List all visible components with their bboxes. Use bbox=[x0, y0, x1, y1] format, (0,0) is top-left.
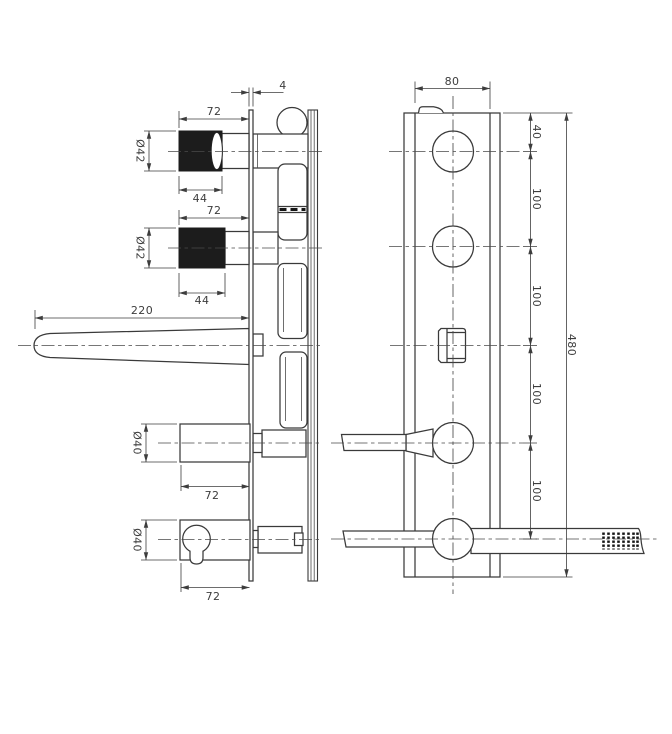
dim-spout-length: 220 bbox=[131, 304, 153, 317]
dim-diverter-diameter: Ø40 bbox=[131, 431, 144, 455]
dim-diverter-span: 72 bbox=[205, 489, 220, 502]
dim-handshower-diameter: Ø40 bbox=[131, 528, 144, 552]
spout-side bbox=[34, 329, 249, 365]
dim-knob-top-span: 72 bbox=[207, 105, 222, 118]
knob-highlight bbox=[211, 132, 222, 169]
side-view: 4 72 Ø42 44 72 Ø42 44 bbox=[18, 79, 322, 603]
dim-spacing-1: 100 bbox=[530, 188, 543, 210]
dim-knob-bottom-face: 44 bbox=[195, 294, 210, 307]
handshower-side bbox=[180, 520, 250, 564]
diverter-handle bbox=[342, 435, 407, 451]
technical-drawing: 4 72 Ø42 44 72 Ø42 44 bbox=[0, 0, 672, 734]
dim-knob-bottom-span: 72 bbox=[207, 204, 222, 217]
dim-handshower-span: 72 bbox=[206, 590, 221, 603]
dim-spacing-2: 100 bbox=[530, 285, 543, 307]
dim-top-offset: 40 bbox=[530, 125, 543, 140]
dim-spacing-4: 100 bbox=[530, 480, 543, 502]
dim-spacing-3: 100 bbox=[530, 383, 543, 405]
spec-sheet: 4 72 Ø42 44 72 Ø42 44 bbox=[0, 0, 672, 734]
trim-plate-side bbox=[249, 110, 253, 581]
dim-knob-top-face: 44 bbox=[193, 192, 208, 205]
dim-knob-top-diameter: Ø42 bbox=[134, 139, 147, 163]
dim-plate-thickness: 4 bbox=[279, 79, 286, 92]
dim-overall-height: 480 bbox=[565, 334, 578, 356]
in-wall-body bbox=[253, 108, 308, 554]
dim-plate-width: 80 bbox=[445, 75, 460, 88]
top-knob bbox=[179, 131, 249, 171]
front-view: 80 40 100 100 100 100 480 bbox=[331, 75, 659, 594]
dim-knob-bottom-diameter: Ø42 bbox=[134, 236, 147, 260]
hook-tab bbox=[419, 107, 444, 113]
